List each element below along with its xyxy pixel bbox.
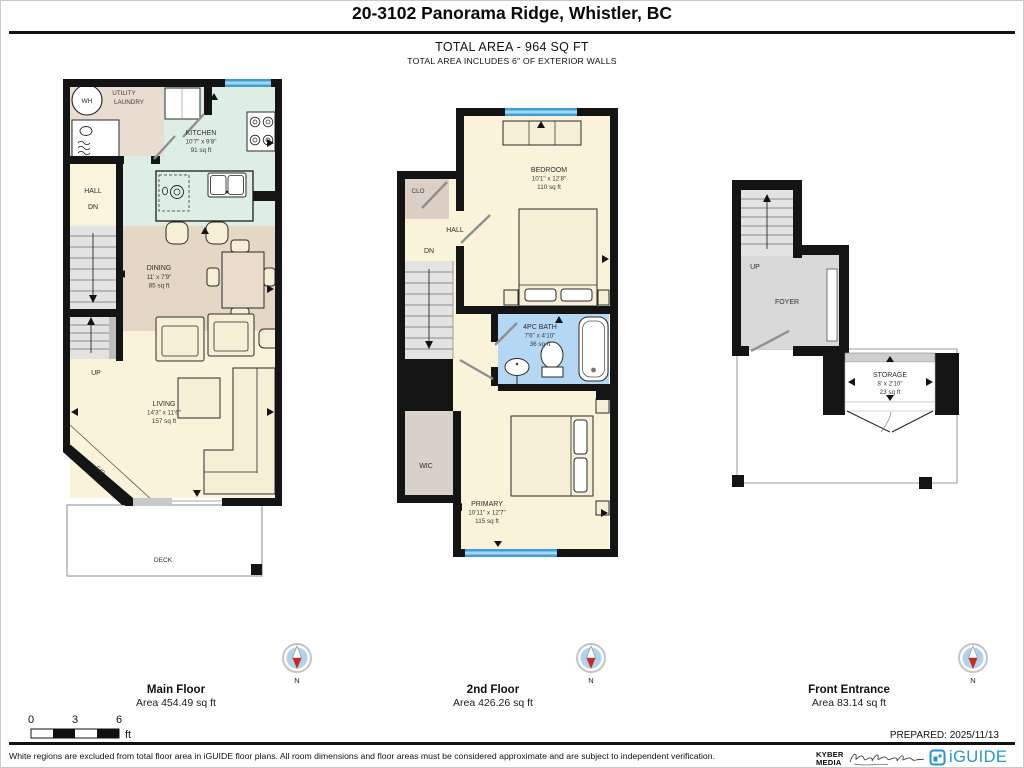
laundry-label: LAUNDRY	[114, 99, 145, 106]
deck-label: DECK	[154, 557, 173, 564]
kitchen-label: KITCHEN	[186, 130, 217, 137]
floor-area: Area 426.26 sq ft	[393, 697, 593, 709]
hall-dn-label: DN	[424, 248, 434, 255]
up-label: UP	[750, 264, 760, 271]
window	[465, 549, 557, 557]
living-dims: 14'3" x 11'6"	[147, 410, 181, 417]
primary-label: PRIMARY	[471, 501, 503, 508]
stairs-up	[741, 190, 793, 256]
floor-area: Area 454.49 sq ft	[76, 697, 276, 709]
living-area: 157 sq ft	[152, 418, 176, 425]
up-label: UP	[91, 370, 101, 377]
hall-label: HALL	[84, 188, 102, 195]
stairs-down	[70, 226, 116, 309]
hall-label: HALL	[446, 227, 464, 234]
footer-divider	[9, 742, 1015, 745]
primary-dims: 10'11" x 12'7"	[468, 510, 506, 517]
dining-dims: 11' x 7'9"	[147, 274, 172, 281]
front-entrance-caption: Front Entrance Area 83.14 sq ft	[749, 684, 949, 709]
stove-icon	[247, 112, 275, 151]
main-floor-caption: Main Floor Area 454.49 sq ft	[76, 684, 276, 709]
bath-label: 4PC BATH	[523, 324, 557, 331]
wh-label: WH	[82, 98, 93, 105]
window	[225, 79, 271, 87]
wic-label: WIC	[419, 463, 433, 470]
bed-icon	[504, 209, 609, 306]
bedroom-area: 110 sq ft	[537, 184, 561, 191]
coffee-table-icon	[178, 378, 220, 418]
closet-label: CLO	[412, 188, 425, 195]
deck: DECK	[67, 505, 262, 576]
water-heater-icon: WH	[72, 85, 102, 115]
bath-area: 36 sq ft	[530, 341, 551, 348]
closet-room	[401, 179, 449, 219]
bath-dims: 7'6" x 4'10"	[524, 333, 555, 340]
compass-icon: N	[275, 642, 319, 688]
armchair-icon	[156, 317, 204, 361]
bedroom-label: BEDROOM	[531, 167, 567, 174]
floor-name: 2nd Floor	[393, 684, 593, 696]
living-label: LIVING	[153, 401, 176, 408]
armchair-icon	[208, 314, 254, 356]
kitchen-island	[156, 171, 253, 221]
washer-icon	[72, 120, 119, 158]
main-floor-plan: DECK WH	[56, 75, 316, 585]
floor-area: Area 83.14 sq ft	[749, 697, 949, 709]
total-area-note: TOTAL AREA INCLUDES 6" OF EXTERIOR WALLS	[1, 56, 1023, 66]
hall-room	[70, 164, 116, 226]
bedroom-dims: 10'1" x 12'8"	[532, 176, 567, 183]
kitchen-dims: 10'7" x 9'8"	[185, 139, 216, 146]
storage-dims: 8' x 2'10"	[877, 381, 902, 388]
header-divider	[9, 31, 1015, 34]
page-title: 20-3102 Panorama Ridge, Whistler, BC	[1, 3, 1023, 24]
window	[505, 108, 577, 116]
foyer-label: FOYER	[775, 299, 799, 306]
compass-n-label: N	[294, 676, 299, 685]
iguide-logo: iGUIDE	[929, 748, 1007, 767]
wic-room	[400, 411, 453, 495]
primary-area: 115 sq ft	[475, 518, 499, 525]
front-entrance-plan: UP FOYER STORAGE 8' x 2'10" 23 sq ft	[723, 176, 968, 496]
scale-unit: ft	[125, 729, 131, 741]
total-area-label: TOTAL AREA - 964 SQ FT	[1, 40, 1023, 54]
dining-label: DINING	[147, 265, 172, 272]
second-floor-caption: 2nd Floor Area 426.26 sq ft	[393, 684, 593, 709]
compass-n-label: N	[970, 676, 975, 685]
scale-6: 6	[116, 714, 122, 726]
storage-area: 23 sq ft	[880, 389, 901, 396]
door-slab	[827, 269, 837, 341]
compass-icon: N	[951, 642, 995, 688]
dining-area: 85 sq ft	[149, 283, 170, 290]
bathtub-icon	[579, 317, 608, 381]
disclaimer-text: White regions are excluded from total fl…	[9, 751, 809, 761]
kitchen-area: 91 sq ft	[191, 147, 212, 154]
storage-label: STORAGE	[873, 372, 907, 379]
floor-name: Front Entrance	[749, 684, 949, 696]
floor-plan-sheet: 20-3102 Panorama Ridge, Whistler, BC TOT…	[0, 0, 1024, 768]
compass-icon: N	[569, 642, 613, 688]
scale-0: 0	[28, 714, 34, 726]
scale-3: 3	[72, 714, 78, 726]
stairs-up	[70, 317, 116, 359]
iguide-logo-icon	[929, 749, 946, 766]
brand-line2: MEDIA	[816, 759, 844, 767]
fridge-icon	[165, 88, 200, 119]
iguide-logo-text: iGUIDE	[949, 748, 1007, 767]
utility-label: UTILITY	[112, 90, 136, 97]
double-sink-icon	[208, 173, 246, 197]
signature-icon	[846, 749, 928, 767]
floor-name: Main Floor	[76, 684, 276, 696]
second-floor-plan: CLO HALL DN BEDROOM 10'1" x 12'8" 110 sq…	[391, 101, 631, 566]
kyber-media-logo: KYBER MEDIA	[816, 751, 844, 766]
stairs-down	[405, 261, 453, 359]
hall-dn-label: DN	[88, 204, 98, 211]
prepared-date: PREPARED: 2025/11/13	[890, 730, 999, 741]
